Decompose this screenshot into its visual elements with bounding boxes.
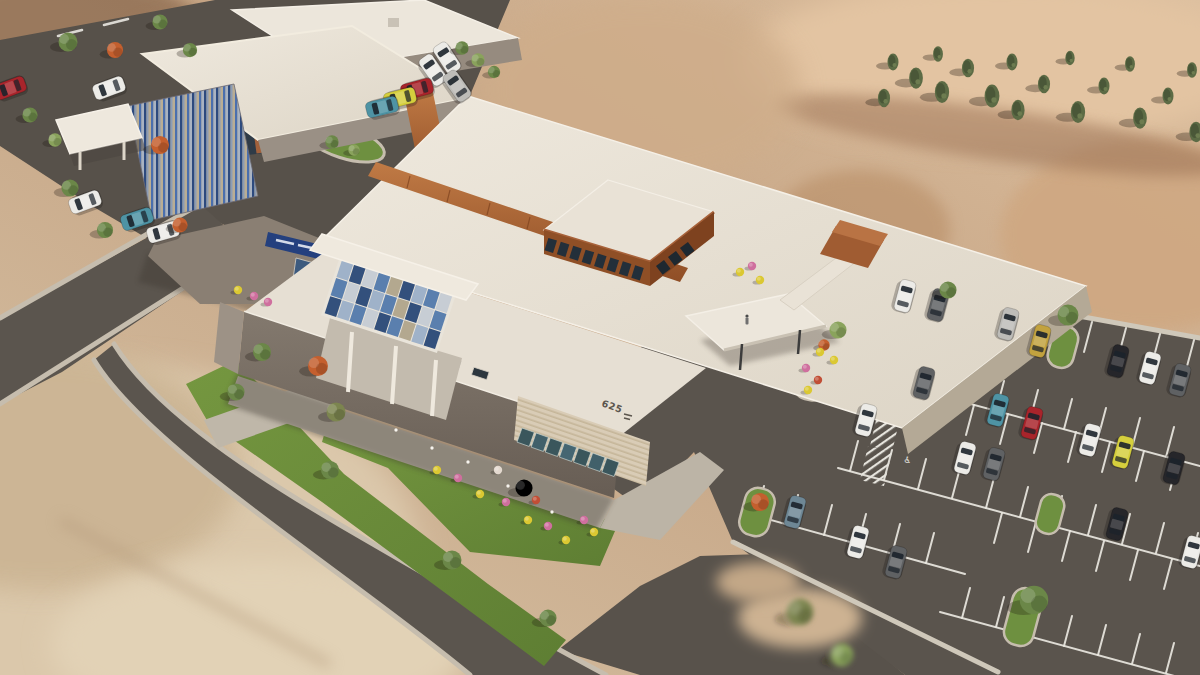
rooftop-unit [388, 18, 399, 27]
architectural-rendering: ♿ ♿ [0, 0, 1200, 675]
rendering-canvas: ♿ ♿ [0, 0, 1200, 675]
bollard-light [550, 510, 553, 513]
person [745, 314, 748, 324]
bollard-light [394, 428, 397, 431]
bollard-light [430, 446, 433, 449]
bollard-light [466, 460, 469, 463]
bollard-light [506, 484, 509, 487]
